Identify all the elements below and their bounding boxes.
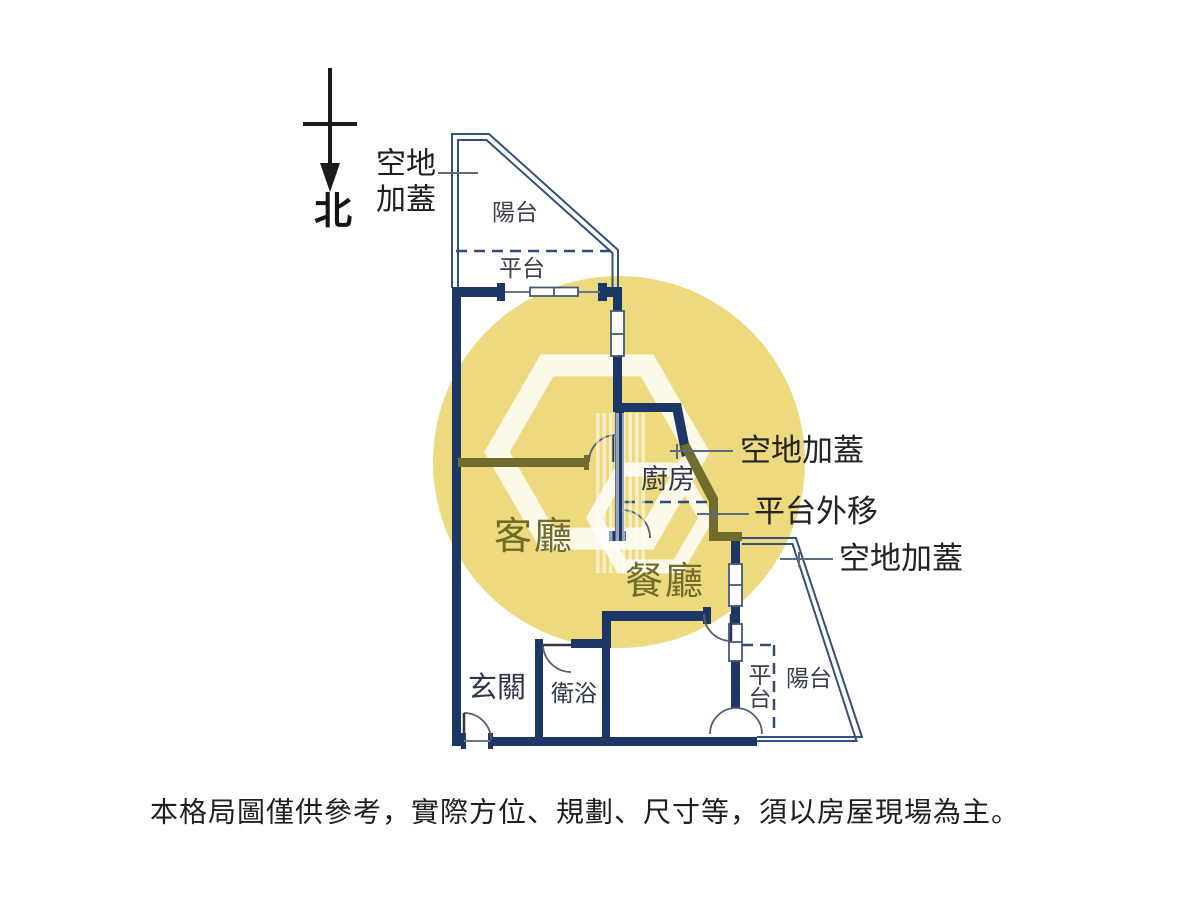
wall-bath-right [602,648,610,737]
room-label-balcony-bottom: 陽台 [786,666,832,692]
floor-plan-page: 北 [0,0,1200,900]
wall-kitchen-top [613,403,676,412]
room-label-platform-bottom: 平台 [744,663,771,709]
room-label-kitchen: 廚房 [641,465,695,496]
wall-right-upper [731,537,740,564]
wall-right-mid [731,606,740,624]
wall-annex-horizontal [709,532,742,541]
room-label-entry: 玄關 [468,670,526,704]
wall-cap [584,455,589,470]
annex-label-top-line1: 空地 [376,147,436,182]
wall-mid-lower [613,356,622,403]
wall-bath-top [571,639,611,648]
room-label-bathroom: 衛浴 [551,681,597,707]
room-label-living: 客廳 [494,514,574,558]
callout-bottom-right: 空地加蓋 [839,541,963,577]
wall-right-lower [731,661,740,712]
north-label: 北 [314,189,352,233]
wall-mid-upper [613,287,622,311]
wall-cap [497,283,505,301]
callout-platform-shift: 平台外移 [754,494,878,530]
disclaimer-text: 本格局圖僅供參考，實際方位、規劃、尺寸等，須以房屋現場為主。 [150,796,1020,829]
wall-left [452,287,461,746]
room-label-dining: 餐廳 [625,559,705,603]
callout-kitchen-right: 空地加蓋 [740,433,864,469]
annex-label-top-line2: 加蓋 [376,183,436,218]
floor-plan-canvas: 北 [0,0,1200,900]
wall-bath-left [535,648,543,737]
wall-bath-top-left [535,639,543,648]
room-label-balcony-top: 陽台 [492,200,538,226]
room-label-platform-top: 平台 [499,256,545,282]
wall-bottom [489,737,757,746]
wall-dining-bottom [606,611,709,621]
wall-living-divider [458,458,589,467]
